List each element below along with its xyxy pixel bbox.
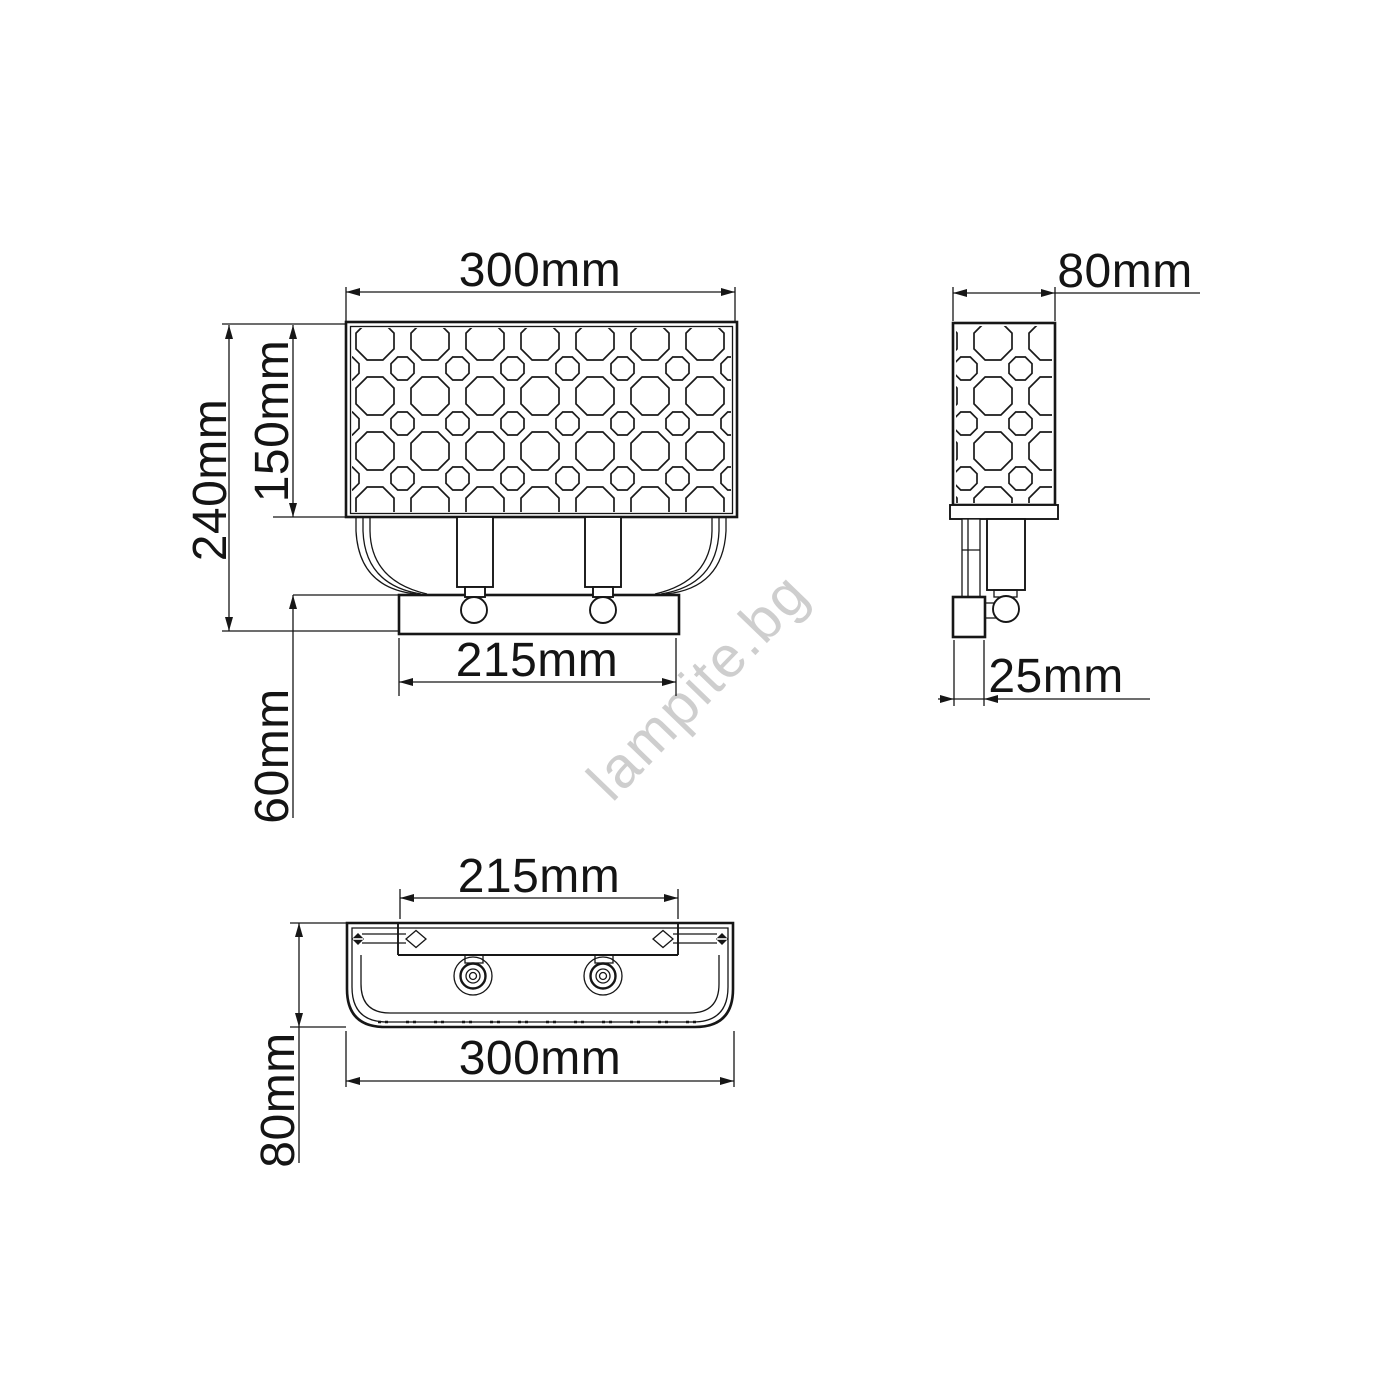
front-left-stem — [457, 517, 493, 623]
side-sphere — [993, 596, 1019, 622]
bottom-depth-dimension: 80mm — [252, 923, 346, 1168]
side-backplate-dimension: 25mm — [938, 640, 1150, 706]
front-drop-dimension-label: 60mm — [246, 688, 299, 823]
side-depth-dimension: 80mm — [953, 245, 1200, 321]
bottom-shell-outline — [347, 923, 733, 1027]
bottom-depth-dimension-label: 80mm — [252, 1032, 305, 1167]
side-wall-plate — [953, 597, 985, 637]
lamp-dimension-drawing: lampite.bg — [0, 0, 1400, 1400]
front-shade-height-dimension-label: 150mm — [246, 340, 299, 503]
bottom-mount-spacing-dimension: 215mm — [400, 850, 678, 919]
front-right-stem — [585, 517, 621, 623]
front-right-scroll-arm — [655, 518, 726, 594]
side-view: 80mm 25mm — [938, 245, 1200, 706]
front-base-plate — [399, 595, 679, 634]
front-left-scroll-arm — [356, 518, 427, 594]
side-depth-dimension-label: 80mm — [1057, 245, 1192, 298]
side-shade-pattern — [956, 326, 1052, 503]
side-shade-rim — [950, 505, 1058, 519]
technical-drawing-page: lampite.bg — [0, 0, 1400, 1400]
side-arm — [962, 519, 980, 597]
bottom-width-dimension-label: 300mm — [459, 1032, 622, 1085]
front-shade-pattern — [352, 328, 731, 512]
front-base-width-dimension-label: 215mm — [456, 634, 619, 687]
front-shade-height-dimension: 150mm — [246, 325, 347, 517]
side-stem — [987, 519, 1025, 590]
front-drop-dimension: 60mm — [246, 595, 399, 824]
front-width-dimension-label: 300mm — [459, 244, 622, 297]
front-base-width-dimension: 215mm — [399, 634, 676, 696]
bottom-view: 215mm 300mm 80mm — [252, 850, 734, 1168]
bottom-mount-spacing-dimension-label: 215mm — [458, 850, 621, 903]
side-backplate-dimension-label: 25mm — [988, 650, 1123, 703]
front-width-dimension: 300mm — [346, 244, 735, 321]
front-total-height-dimension-label: 240mm — [184, 399, 237, 562]
bottom-width-dimension: 300mm — [346, 1031, 734, 1087]
